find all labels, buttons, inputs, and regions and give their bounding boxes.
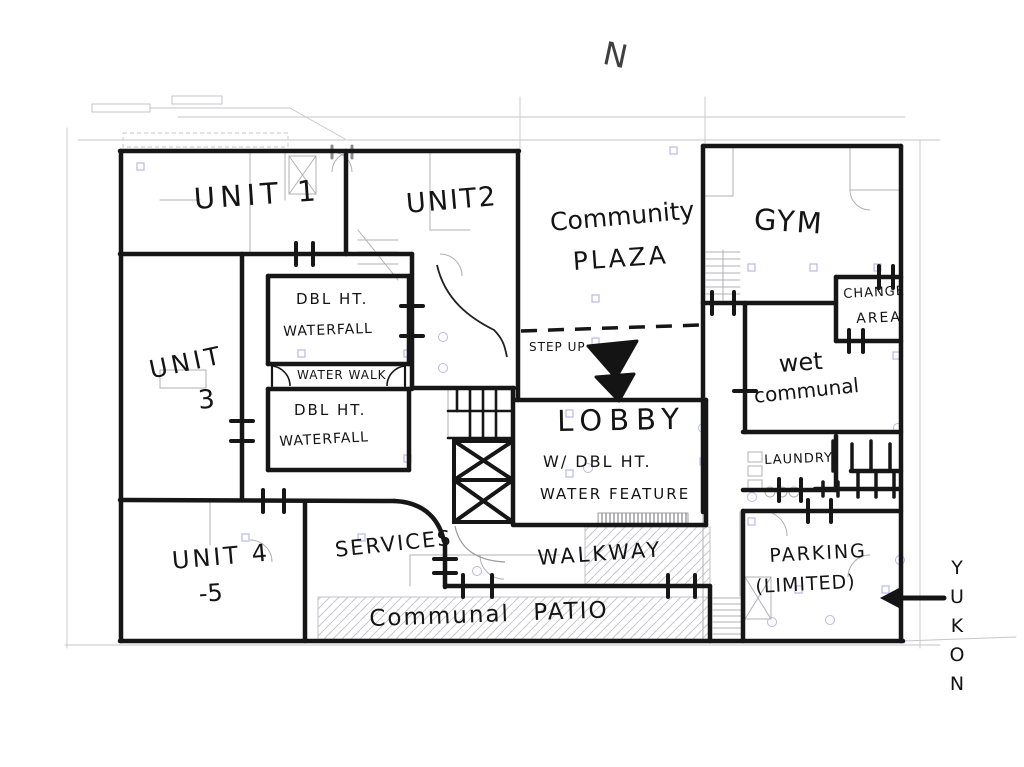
label-unit45-2: -5	[198, 580, 224, 606]
label-step-up: STEP UP	[529, 341, 586, 353]
unit2-swing-curve	[437, 265, 507, 357]
label-change-area-1: CHANGE	[843, 285, 905, 301]
label-change-area-2: AREA	[856, 310, 902, 326]
label-yukon-street: YUKON	[947, 557, 966, 702]
step-up-arrow	[588, 341, 637, 401]
label-lobby-2: W/ DBL HT.	[543, 454, 652, 470]
label-water-walk: WATER WALK	[297, 369, 387, 381]
label-wet-communal-1: wet	[778, 349, 823, 376]
label-communal-patio-1: Communal	[369, 603, 510, 631]
label-gym: GYM	[753, 205, 825, 239]
label-community-plaza-2: PLAZA	[572, 242, 669, 274]
label-unit1: UNIT 1	[193, 176, 322, 214]
label-unit2: UNIT2	[405, 183, 499, 218]
yukon-arrow-icon	[881, 587, 944, 609]
label-waterfall-upper-1: DBL HT.	[296, 292, 368, 307]
label-lobby-1: LOBBY	[557, 405, 686, 436]
elevator-shafts	[454, 441, 513, 522]
label-communal-patio-2: PATIO	[533, 599, 609, 625]
label-waterfall-lower-1: DBL HT.	[294, 403, 366, 418]
label-lobby-3: WATER FEATURE	[540, 487, 690, 502]
label-unit3-2: 3	[197, 387, 216, 414]
label-waterfall-upper-2: WATERFALL	[283, 322, 373, 339]
label-parking-2: (LIMITED)	[755, 573, 856, 597]
floor-plan-sketch: N UNIT 1 UNIT2 Community PLAZA GYM CHANG…	[0, 0, 1024, 767]
label-parking-1: PARKING	[769, 542, 867, 566]
label-laundry: LAUNDRY,	[764, 451, 838, 467]
plaza-dashed-boundary	[521, 325, 700, 331]
